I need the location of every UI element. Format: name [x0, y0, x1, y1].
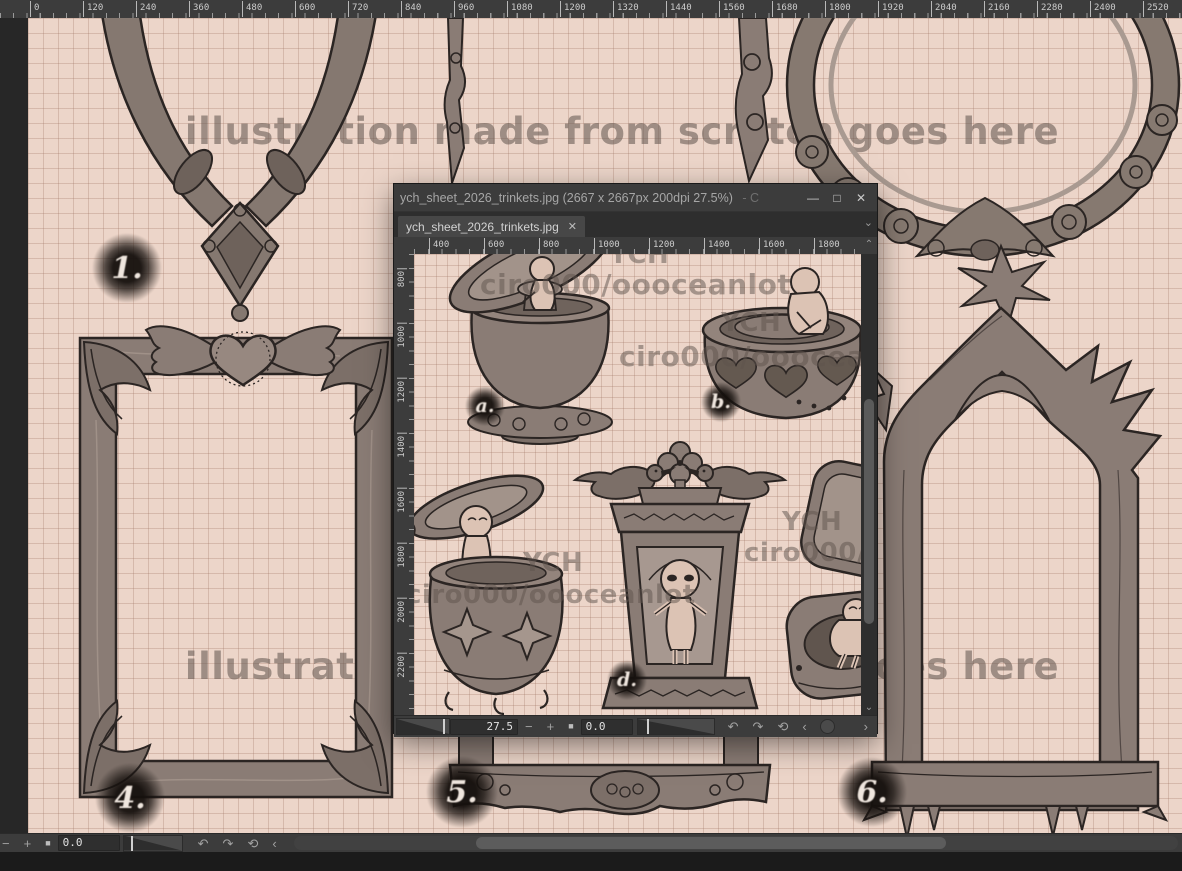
ruler-label: 840: [401, 1, 421, 17]
ruler-label: 1200: [397, 378, 407, 403]
scroll-up-button[interactable]: ⌃: [861, 237, 877, 254]
ruler-label: 480: [242, 1, 262, 17]
ruler-label: 720: [348, 1, 368, 17]
reset-view-icon[interactable]: ⟲: [770, 718, 795, 735]
ruler-label: 600: [295, 1, 315, 17]
scroll-down-button[interactable]: ⌄: [861, 701, 877, 715]
zoom-slider[interactable]: [396, 718, 450, 735]
zoom-reset-button[interactable]: ■: [561, 718, 580, 735]
ruler-label: 1080: [507, 1, 533, 17]
ruler-label: 1560: [719, 1, 745, 17]
ruler-label: 1680: [772, 1, 798, 17]
redo-button[interactable]: ↷: [746, 718, 771, 735]
rotation-slider[interactable]: [637, 718, 715, 735]
ruler-label: 400: [429, 238, 449, 254]
vertical-scrollbar[interactable]: ⌄: [861, 254, 877, 715]
zoom-reset-button[interactable]: ■: [38, 835, 57, 852]
window-titlebar[interactable]: ych_sheet_2026_trinkets.jpg (2667 x 2667…: [394, 184, 877, 212]
document-tab[interactable]: ych_sheet_2026_trinkets.jpg ✕: [398, 216, 585, 237]
expand-right-button[interactable]: ›: [857, 718, 875, 735]
rotation-value[interactable]: 0.0: [581, 719, 633, 735]
zoom-out-button[interactable]: −: [518, 718, 540, 735]
knob-icon[interactable]: [820, 719, 835, 734]
ruler-label: 240: [136, 1, 156, 17]
ruler-label: 1800: [814, 238, 840, 254]
app-bottom-edge: [0, 852, 1182, 871]
frame-label-1: 1.: [92, 233, 162, 303]
ruler-label: 1320: [613, 1, 639, 17]
trinket-label-b: b.: [701, 382, 741, 422]
ruler-label: 1440: [666, 1, 692, 17]
maximize-button[interactable]: □: [827, 191, 847, 205]
frame-6: [864, 246, 1166, 833]
ruler-label: 0: [30, 1, 39, 17]
collapse-left-button[interactable]: ‹: [265, 835, 283, 852]
canvas-gutter: [0, 18, 28, 833]
frame-label-6: 6.: [837, 757, 907, 827]
ruler-label: 2000: [397, 598, 407, 623]
trinket-a: [439, 254, 621, 444]
trinket-label-d: d.: [607, 660, 647, 700]
ruler-label: 1000: [397, 323, 407, 348]
float-statusbar: 27.5 − + ■ 0.0 ↶ ↷ ⟲ ‹ ›: [394, 715, 877, 737]
frame-label-5: 5.: [426, 756, 498, 828]
zoom-out-button[interactable]: −: [0, 835, 17, 852]
zoom-value[interactable]: 27.5: [450, 719, 518, 735]
ruler-label: 2280: [1037, 1, 1063, 17]
ruler-label: 120: [83, 1, 103, 17]
ruler-label: 1600: [759, 238, 785, 254]
ruler-label: 1400: [704, 238, 730, 254]
trinket-canvas[interactable]: YCH ciro000/oooceanlot YCH ciro000/oooce…: [414, 254, 861, 715]
tab-close-icon[interactable]: ✕: [568, 220, 577, 233]
frame-5: [450, 730, 770, 814]
main-top-ruler: 0120240360480600720840960108012001320144…: [0, 0, 1182, 18]
undo-button[interactable]: ↶: [721, 718, 746, 735]
horizontal-scrollbar-thumb[interactable]: [476, 837, 946, 849]
ruler-label: 1000: [594, 238, 620, 254]
redo-button[interactable]: ↷: [216, 835, 241, 852]
document-tabbar: ych_sheet_2026_trinkets.jpg ✕ ⌄: [394, 212, 877, 237]
ruler-label: 960: [454, 1, 474, 17]
reset-view-icon[interactable]: ⟲: [240, 835, 265, 852]
undo-button[interactable]: ↶: [191, 835, 216, 852]
tab-label: ych_sheet_2026_trinkets.jpg: [406, 220, 559, 234]
horizontal-scrollbar[interactable]: [294, 836, 1178, 850]
float-top-ruler: 40060080010001200140016001800: [414, 237, 861, 254]
zoom-in-button[interactable]: +: [540, 718, 562, 735]
app-window: 0120240360480600720840960108012001320144…: [0, 0, 1182, 871]
ruler-label: 1920: [878, 1, 904, 17]
tab-menu-icon[interactable]: ⌄: [864, 216, 873, 229]
ruler-label: 1800: [397, 543, 407, 568]
frame-4: [80, 326, 392, 797]
ruler-label: 1400: [397, 433, 407, 458]
rotation-slider[interactable]: [123, 835, 183, 852]
ruler-label: 2400: [1090, 1, 1116, 17]
trinket-d: [575, 442, 785, 708]
ruler-label: 360: [189, 1, 209, 17]
trinket-artwork: [414, 254, 861, 715]
vertical-scrollbar-thumb[interactable]: [864, 399, 874, 624]
ruler-label: 1800: [825, 1, 851, 17]
ruler-label: 1200: [560, 1, 586, 17]
document-window[interactable]: ych_sheet_2026_trinkets.jpg (2667 x 2667…: [393, 183, 878, 734]
frame-label-4: 4.: [95, 763, 165, 833]
close-button[interactable]: ✕: [851, 191, 871, 205]
ruler-label: 2520: [1143, 1, 1169, 17]
ruler-label: 800: [539, 238, 559, 254]
rotation-value[interactable]: 0.0: [58, 835, 120, 851]
ruler-label: 2200: [397, 653, 407, 678]
trinket-label-a: a.: [465, 386, 505, 426]
ruler-label: 600: [484, 238, 504, 254]
ruler-label: 1600: [397, 488, 407, 513]
main-statusbar: − + ■ 0.0 ↶ ↷ ⟲ ‹: [0, 833, 1182, 852]
frame-2: [445, 18, 772, 183]
zoom-in-button[interactable]: +: [17, 835, 39, 852]
window-title: ych_sheet_2026_trinkets.jpg (2667 x 2667…: [400, 191, 799, 205]
ruler-label: 1200: [649, 238, 675, 254]
float-left-ruler: 8001000120014001600180020002200: [394, 254, 414, 715]
trinket-e: [784, 456, 861, 701]
ruler-label: 2160: [984, 1, 1010, 17]
ruler-corner: [394, 237, 414, 254]
ruler-label: 800: [397, 268, 407, 287]
trinket-c: [414, 463, 563, 714]
collapse-left-button[interactable]: ‹: [795, 718, 813, 735]
ruler-label: 2040: [931, 1, 957, 17]
minimize-button[interactable]: —: [803, 191, 823, 205]
